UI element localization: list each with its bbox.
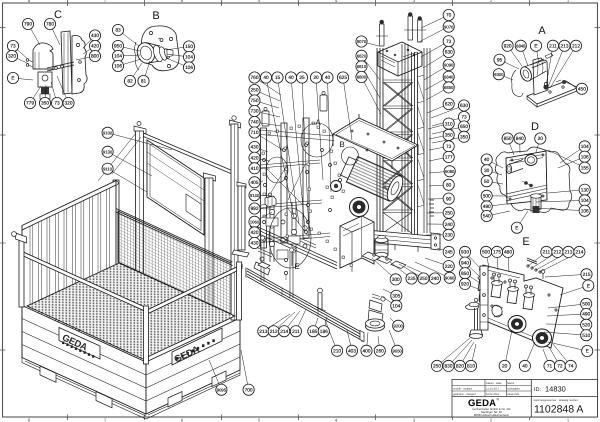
svg-text:9090: 9090 bbox=[444, 63, 454, 68]
svg-text:830: 830 bbox=[444, 364, 452, 370]
svg-text:213: 213 bbox=[560, 44, 568, 50]
svg-text:6840: 6840 bbox=[444, 74, 454, 79]
svg-text:73: 73 bbox=[446, 144, 452, 150]
svg-text:E: E bbox=[587, 283, 590, 289]
svg-text:520: 520 bbox=[582, 323, 590, 329]
svg-text:9110: 9110 bbox=[103, 166, 113, 171]
svg-text:40: 40 bbox=[522, 364, 528, 370]
svg-text:780: 780 bbox=[46, 22, 54, 28]
svg-text:840: 840 bbox=[516, 136, 524, 142]
svg-text:992: 992 bbox=[250, 206, 258, 212]
svg-text:230: 230 bbox=[445, 233, 453, 239]
svg-text:211: 211 bbox=[292, 329, 300, 335]
svg-text:D: D bbox=[531, 121, 539, 133]
svg-text:6848: 6848 bbox=[516, 44, 526, 49]
svg-text:90: 90 bbox=[446, 196, 452, 202]
svg-text:B: B bbox=[152, 10, 159, 22]
svg-text:Zeichnungsnummer - Drawing num: Zeichnungsnummer - Drawing number bbox=[534, 399, 578, 402]
svg-text:E: E bbox=[11, 76, 14, 82]
svg-text:740: 740 bbox=[250, 120, 258, 126]
svg-text:400: 400 bbox=[362, 349, 370, 355]
svg-text:1102848 A: 1102848 A bbox=[534, 404, 583, 416]
svg-text:820: 820 bbox=[456, 364, 464, 370]
svg-text:630: 630 bbox=[460, 103, 468, 109]
svg-text:E: E bbox=[515, 225, 518, 231]
svg-text:410: 410 bbox=[250, 166, 258, 172]
svg-text:490: 490 bbox=[582, 312, 590, 318]
svg-text:350: 350 bbox=[445, 133, 453, 139]
svg-text:810: 810 bbox=[467, 364, 475, 370]
svg-text:80: 80 bbox=[446, 183, 452, 189]
svg-text:420: 420 bbox=[250, 230, 258, 236]
svg-text:9070: 9070 bbox=[357, 39, 367, 44]
svg-text:Name: Name bbox=[507, 382, 514, 385]
svg-text:500: 500 bbox=[483, 194, 491, 200]
svg-text:175: 175 bbox=[493, 250, 501, 256]
svg-text:A: A bbox=[315, 118, 321, 127]
svg-text:620: 620 bbox=[445, 102, 453, 108]
svg-text:800: 800 bbox=[91, 54, 99, 60]
svg-text:SKLEYER: SKLEYER bbox=[507, 393, 519, 396]
svg-text:20: 20 bbox=[538, 136, 544, 142]
svg-text:625: 625 bbox=[339, 75, 347, 81]
svg-text:40: 40 bbox=[484, 157, 490, 163]
svg-text:420: 420 bbox=[250, 155, 258, 161]
svg-text:95: 95 bbox=[497, 57, 503, 63]
svg-text:300: 300 bbox=[392, 277, 400, 283]
svg-text:E: E bbox=[586, 349, 589, 355]
svg-text:9060: 9060 bbox=[445, 276, 455, 281]
svg-text:104: 104 bbox=[114, 54, 122, 60]
svg-text:540: 540 bbox=[483, 214, 491, 220]
svg-text:920: 920 bbox=[504, 44, 512, 50]
svg-text:630: 630 bbox=[445, 50, 453, 56]
svg-text:15: 15 bbox=[275, 75, 281, 81]
svg-text:A: A bbox=[538, 25, 546, 37]
svg-text:71: 71 bbox=[547, 364, 553, 370]
svg-text:104: 104 bbox=[185, 55, 193, 61]
svg-text:20: 20 bbox=[313, 75, 319, 81]
svg-text:9300: 9300 bbox=[494, 72, 504, 77]
svg-text:74: 74 bbox=[568, 364, 574, 370]
svg-text:70: 70 bbox=[446, 13, 452, 19]
svg-text:211: 211 bbox=[543, 250, 551, 256]
svg-text:6800: 6800 bbox=[357, 75, 367, 80]
svg-text:250: 250 bbox=[433, 364, 441, 370]
svg-text:B: B bbox=[339, 140, 344, 149]
svg-text:700: 700 bbox=[245, 387, 253, 393]
svg-text:30: 30 bbox=[484, 168, 490, 174]
svg-text:86663 Asbach-Bäumenheim: 86663 Asbach-Bäumenheim bbox=[474, 413, 510, 417]
svg-text:130: 130 bbox=[581, 187, 589, 193]
svg-text:790: 790 bbox=[24, 22, 32, 28]
svg-text:710: 710 bbox=[250, 130, 258, 136]
svg-text:ID:: ID: bbox=[534, 387, 542, 393]
svg-text:104: 104 bbox=[581, 144, 589, 150]
svg-text:9095: 9095 bbox=[217, 387, 227, 392]
svg-text:210: 210 bbox=[333, 349, 341, 355]
svg-text:250: 250 bbox=[419, 276, 427, 282]
svg-text:73: 73 bbox=[54, 101, 60, 107]
svg-text:240: 240 bbox=[431, 276, 439, 282]
svg-text:81: 81 bbox=[141, 79, 147, 85]
svg-text:214: 214 bbox=[575, 250, 583, 256]
svg-text:779: 779 bbox=[26, 101, 34, 107]
svg-text:155: 155 bbox=[581, 165, 589, 171]
svg-text:73: 73 bbox=[446, 39, 452, 45]
svg-text:82: 82 bbox=[127, 79, 133, 85]
svg-text:9140: 9140 bbox=[250, 193, 260, 198]
svg-text:1060: 1060 bbox=[250, 220, 260, 225]
svg-text:320: 320 bbox=[64, 101, 72, 107]
svg-text:73: 73 bbox=[10, 44, 16, 50]
svg-text:12.10.2017: 12.10.2017 bbox=[486, 388, 500, 391]
svg-text:500: 500 bbox=[482, 250, 490, 256]
svg-text:430: 430 bbox=[91, 33, 99, 39]
svg-text:430: 430 bbox=[250, 145, 258, 151]
svg-text:9100: 9100 bbox=[103, 131, 113, 136]
svg-text:430: 430 bbox=[250, 241, 258, 247]
svg-text:Datum - Date: Datum - Date bbox=[486, 382, 502, 385]
svg-text:20: 20 bbox=[502, 364, 508, 370]
svg-text:14830: 14830 bbox=[545, 385, 566, 394]
svg-text:177: 177 bbox=[445, 155, 453, 161]
svg-text:920: 920 bbox=[461, 282, 469, 288]
svg-text:C: C bbox=[54, 9, 62, 21]
svg-text:245: 245 bbox=[445, 250, 453, 256]
svg-text:erstellt - created: erstellt - created bbox=[453, 388, 472, 391]
svg-text:6850: 6850 bbox=[444, 85, 454, 90]
svg-text:6820: 6820 bbox=[357, 54, 367, 59]
svg-text:235: 235 bbox=[407, 276, 415, 282]
svg-text:213: 213 bbox=[564, 250, 572, 256]
svg-text:185: 185 bbox=[309, 329, 317, 335]
svg-text:106: 106 bbox=[581, 154, 589, 160]
svg-text:150: 150 bbox=[185, 44, 193, 50]
svg-text:500: 500 bbox=[582, 302, 590, 308]
svg-text:9200: 9200 bbox=[394, 324, 404, 329]
svg-text:®: ® bbox=[497, 398, 500, 402]
svg-text:72: 72 bbox=[557, 364, 563, 370]
svg-text:212: 212 bbox=[270, 329, 278, 335]
svg-text:geändert - changed: geändert - changed bbox=[453, 393, 476, 396]
svg-text:9080: 9080 bbox=[445, 169, 455, 174]
svg-text:40: 40 bbox=[288, 75, 294, 81]
svg-text:650: 650 bbox=[460, 124, 468, 130]
svg-text:83: 83 bbox=[115, 28, 121, 34]
svg-text:510: 510 bbox=[582, 333, 590, 339]
svg-text:212: 212 bbox=[553, 250, 561, 256]
svg-text:240: 240 bbox=[445, 222, 453, 228]
svg-text:750: 750 bbox=[250, 98, 258, 104]
svg-text:250: 250 bbox=[250, 88, 258, 94]
svg-text:9070: 9070 bbox=[444, 24, 454, 29]
svg-text:250: 250 bbox=[445, 211, 453, 217]
svg-text:930: 930 bbox=[461, 250, 469, 256]
svg-text:106: 106 bbox=[581, 208, 589, 214]
svg-text:850: 850 bbox=[504, 136, 512, 142]
svg-text:6810: 6810 bbox=[357, 64, 367, 69]
svg-text:480: 480 bbox=[504, 250, 512, 256]
svg-text:E: E bbox=[534, 44, 537, 50]
svg-text:320: 320 bbox=[8, 54, 16, 60]
svg-text:420: 420 bbox=[91, 44, 99, 50]
svg-text:450: 450 bbox=[578, 87, 586, 93]
svg-text:350: 350 bbox=[460, 135, 468, 141]
svg-text:104: 104 bbox=[581, 198, 589, 204]
svg-text:9130: 9130 bbox=[103, 150, 113, 155]
svg-text:E: E bbox=[522, 236, 529, 248]
svg-text:106: 106 bbox=[185, 65, 193, 71]
svg-text:730: 730 bbox=[250, 109, 258, 115]
svg-text:214: 214 bbox=[280, 329, 288, 335]
svg-text:260: 260 bbox=[376, 349, 384, 355]
svg-text:310: 310 bbox=[445, 121, 453, 127]
svg-text:40: 40 bbox=[263, 75, 269, 81]
svg-text:73: 73 bbox=[461, 115, 467, 121]
svg-text:50: 50 bbox=[484, 179, 490, 185]
svg-text:186: 186 bbox=[320, 329, 328, 335]
svg-text:18.02.2019: 18.02.2019 bbox=[486, 393, 500, 396]
svg-text:215: 215 bbox=[582, 272, 590, 278]
svg-text:490: 490 bbox=[483, 204, 491, 210]
svg-text:940: 940 bbox=[461, 260, 469, 266]
svg-text:25: 25 bbox=[299, 75, 305, 81]
svg-text:760: 760 bbox=[250, 75, 258, 81]
svg-text:MZAngeler: MZAngeler bbox=[507, 388, 520, 391]
svg-text:40: 40 bbox=[325, 75, 331, 81]
svg-text:211: 211 bbox=[549, 44, 557, 50]
svg-text:950: 950 bbox=[114, 44, 122, 50]
svg-text:104: 104 bbox=[392, 304, 400, 310]
svg-text:106: 106 bbox=[114, 64, 122, 70]
svg-text:405: 405 bbox=[250, 180, 258, 186]
svg-text:950: 950 bbox=[461, 271, 469, 277]
svg-text:212: 212 bbox=[572, 44, 580, 50]
svg-text:305: 305 bbox=[392, 293, 400, 299]
svg-text:9050: 9050 bbox=[393, 349, 403, 354]
svg-text:213: 213 bbox=[259, 329, 267, 335]
svg-text:350: 350 bbox=[41, 101, 49, 107]
svg-text:220: 220 bbox=[445, 264, 453, 270]
svg-text:403: 403 bbox=[348, 349, 356, 355]
